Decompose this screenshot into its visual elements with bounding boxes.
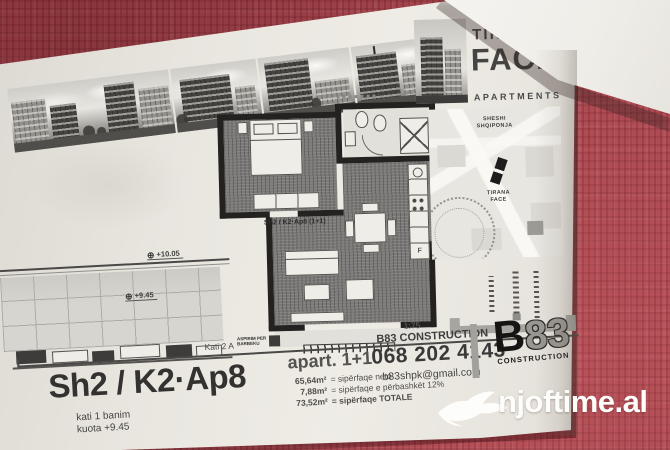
wall-segment (220, 211, 270, 218)
map-roundabout (428, 196, 496, 260)
map-plaza-label: SHESHISHQIPONJA (442, 115, 546, 131)
tv-bench (290, 312, 344, 323)
tree (176, 113, 189, 126)
wall-segment (298, 210, 344, 217)
floor-label: Kati 2 A (204, 341, 234, 353)
building (50, 103, 80, 140)
chair (361, 203, 378, 212)
sheet-number: 2 (39, 352, 45, 362)
pillow (277, 123, 297, 135)
building (138, 86, 173, 129)
paper-edge-curl (535, 50, 577, 435)
building (104, 82, 140, 133)
photo-of-floorplan-brochure: F Sh2 / K2·Ap8 (1+1) ASPIRIM PER BARBEKU… (0, 0, 670, 450)
tree (82, 125, 95, 138)
level-marker-lower: ⊕ +9.45 (125, 290, 157, 302)
watermark-text: njoftime.al (498, 384, 648, 420)
wardrobe (253, 192, 319, 210)
pillow (253, 123, 273, 135)
bathroom-sink (345, 131, 356, 146)
level-value: +9.45 (134, 290, 153, 300)
level-marker-icon: ⊕ (125, 292, 133, 300)
print-showthrough (30, 140, 190, 230)
apartment-type: apart. 1+1 (287, 348, 373, 374)
street (416, 95, 468, 104)
coffee-table (304, 284, 330, 301)
nightstand (303, 120, 313, 132)
diagram-column (489, 276, 495, 312)
floor-plan: F Sh2 / K2·Ap8 (1+1) ASPIRIM PER BARBEKU (203, 89, 448, 357)
area-value: 73,52m² (276, 396, 329, 410)
nightstand (237, 122, 247, 134)
dimension-microtext (337, 95, 379, 99)
building (420, 37, 444, 96)
diagram-column (512, 269, 519, 313)
toilet (355, 111, 368, 128)
chair (387, 219, 396, 236)
bidet (373, 114, 386, 131)
wall-segment (335, 104, 343, 164)
side-table (345, 279, 374, 301)
building-photo-thumbnail (414, 19, 468, 104)
chair (363, 244, 380, 253)
building (11, 99, 50, 145)
level-marker-icon: ⊕ (147, 251, 155, 259)
chair (345, 220, 354, 237)
tree (97, 126, 107, 136)
level-value: +10.05 (156, 249, 180, 259)
dining-table (354, 212, 387, 243)
elevation-line: kuota +9.45 (77, 421, 130, 435)
sofa (285, 250, 340, 276)
building (445, 49, 462, 95)
scale-label: 1:75 (403, 320, 420, 331)
watermark: njoftime.al (436, 380, 670, 434)
level-marker-upper: ⊕ +10.05 (147, 249, 183, 261)
map-building-marker (490, 157, 508, 185)
city-block (437, 145, 466, 168)
